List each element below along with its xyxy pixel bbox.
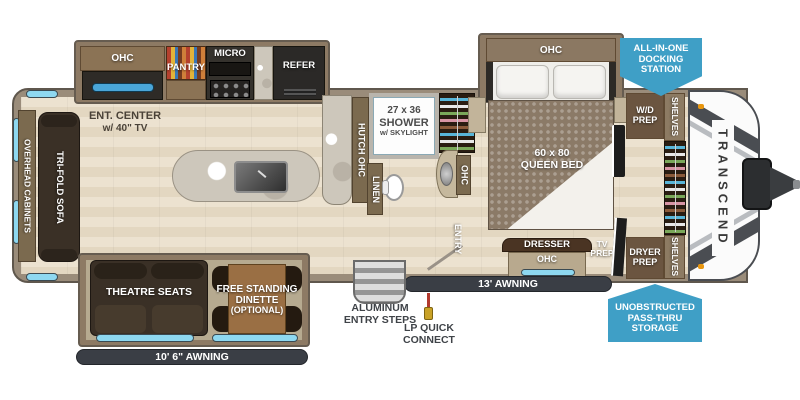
clearance-light-top [698, 104, 704, 109]
bath-ohc: OHC [456, 155, 471, 195]
linen-label: LINEN [368, 164, 382, 214]
floorplan-transcend: OVERHEAD CABINETS TRI-FOLD SOFA OHC PANT… [0, 0, 800, 400]
awning-10ft: 10' 6" AWNING [76, 349, 308, 365]
island-sink [234, 161, 288, 193]
entry-steps [353, 260, 406, 304]
wd-prep-label: W/D PREP [627, 94, 663, 138]
dresser-label: DRESSER [503, 239, 591, 251]
sofa-label: TRI-FOLD SOFA [39, 113, 79, 261]
shower: 27 x 36 SHOWER w/ SKYLIGHT [369, 93, 439, 159]
slide-window-left [96, 334, 194, 342]
bath-sink [440, 162, 453, 186]
hutch-counter [322, 95, 352, 205]
pillow-right [553, 65, 606, 99]
ent-center-label: ENT. CENTER w/ 40" TV [80, 110, 170, 134]
bedroom-mirror [612, 125, 625, 177]
kitchen-counter [254, 46, 273, 100]
dresser-ohc-label: OHC [509, 254, 585, 266]
linen-cabinet: LINEN [367, 163, 383, 215]
dryer-prep-cabinet: DRYER PREP [626, 237, 664, 279]
kitchen-ohc-label: OHC [81, 47, 164, 70]
lp-connector-icon [424, 307, 433, 320]
microwave [209, 62, 251, 76]
kitchen-island [172, 150, 320, 202]
bed-ohc-label: OHC [487, 39, 615, 61]
slide-window-right [212, 334, 298, 342]
theatre-cushion-right [152, 305, 203, 333]
dresser-top: DRESSER [502, 238, 592, 252]
bed-label: 60 x 80 QUEEN BED [497, 143, 607, 177]
shelves-top: SHELVES [664, 93, 685, 141]
nightstand-left [468, 97, 486, 133]
shelves-bottom-label: SHELVES [665, 236, 684, 278]
theatre-label: THEATRE SEATS [91, 285, 207, 301]
shelves-top-label: SHELVES [665, 94, 684, 140]
tv-prep-label: TV PREP [590, 238, 614, 260]
micro-label: MICRO [206, 48, 254, 60]
theatre-back-right [151, 263, 204, 279]
wd-prep-cabinet: W/D PREP [626, 93, 664, 139]
bed-frame-right [609, 62, 616, 102]
cooktop [210, 80, 250, 98]
awning-13ft: 13' AWNING [404, 276, 612, 292]
front-closet [664, 141, 686, 235]
pass-thru-storage-badge: UNOBSTRUCTED PASS-THRU STORAGE [608, 284, 702, 342]
bed-ohc-cabinet: OHC [486, 38, 616, 62]
closet-rod [675, 144, 676, 232]
shelves-bottom: SHELVES [664, 235, 685, 279]
theatre-seats: THEATRE SEATS [90, 260, 208, 336]
entry-label: ENTRY [450, 220, 464, 258]
kitchen-ohc-cabinet: OHC [80, 46, 165, 71]
hutch-ohc-label: HUTCH OHC [353, 98, 368, 202]
clearance-light-bottom [698, 264, 704, 269]
ent-center-cabinet [82, 71, 163, 100]
dryer-prep-label: DRYER PREP [627, 238, 663, 278]
rear-top-window [26, 90, 58, 98]
bath-ohc-label: OHC [457, 156, 470, 194]
theatre-cushion-left [95, 305, 146, 333]
brand-label: TRANSCEND [712, 120, 734, 256]
refrigerator: REFER [273, 46, 325, 100]
pillow-left [496, 65, 549, 99]
hitch-tip [793, 180, 800, 189]
tri-fold-sofa: TRI-FOLD SOFA [38, 112, 80, 262]
refer-vent [284, 89, 316, 96]
rear-bottom-window [26, 273, 58, 281]
dinette-label: FREE STANDING DINETTE (OPTIONAL) [206, 278, 308, 322]
wardrobe-rod [457, 96, 458, 150]
overhead-cabinets-label: OVERHEAD CABINETS [19, 111, 35, 261]
pantry-label: PANTRY [162, 62, 210, 74]
pantry-drawer [166, 80, 206, 100]
tv-screen [92, 83, 154, 92]
bed-frame-left [486, 62, 493, 102]
hitch-box [742, 158, 772, 210]
refer-label: REFER [274, 47, 324, 85]
shower-label: 27 x 36 SHOWER w/ SKYLIGHT [373, 105, 435, 138]
dresser-window [521, 269, 575, 276]
theatre-back-left [94, 263, 147, 279]
lp-line [427, 293, 430, 307]
lp-quick-connect-label: LP QUICK CONNECT [396, 322, 462, 346]
overhead-cabinets: OVERHEAD CABINETS [18, 110, 36, 262]
queen-bed: 60 x 80 QUEEN BED [488, 100, 614, 230]
toilet-tank [382, 180, 389, 195]
